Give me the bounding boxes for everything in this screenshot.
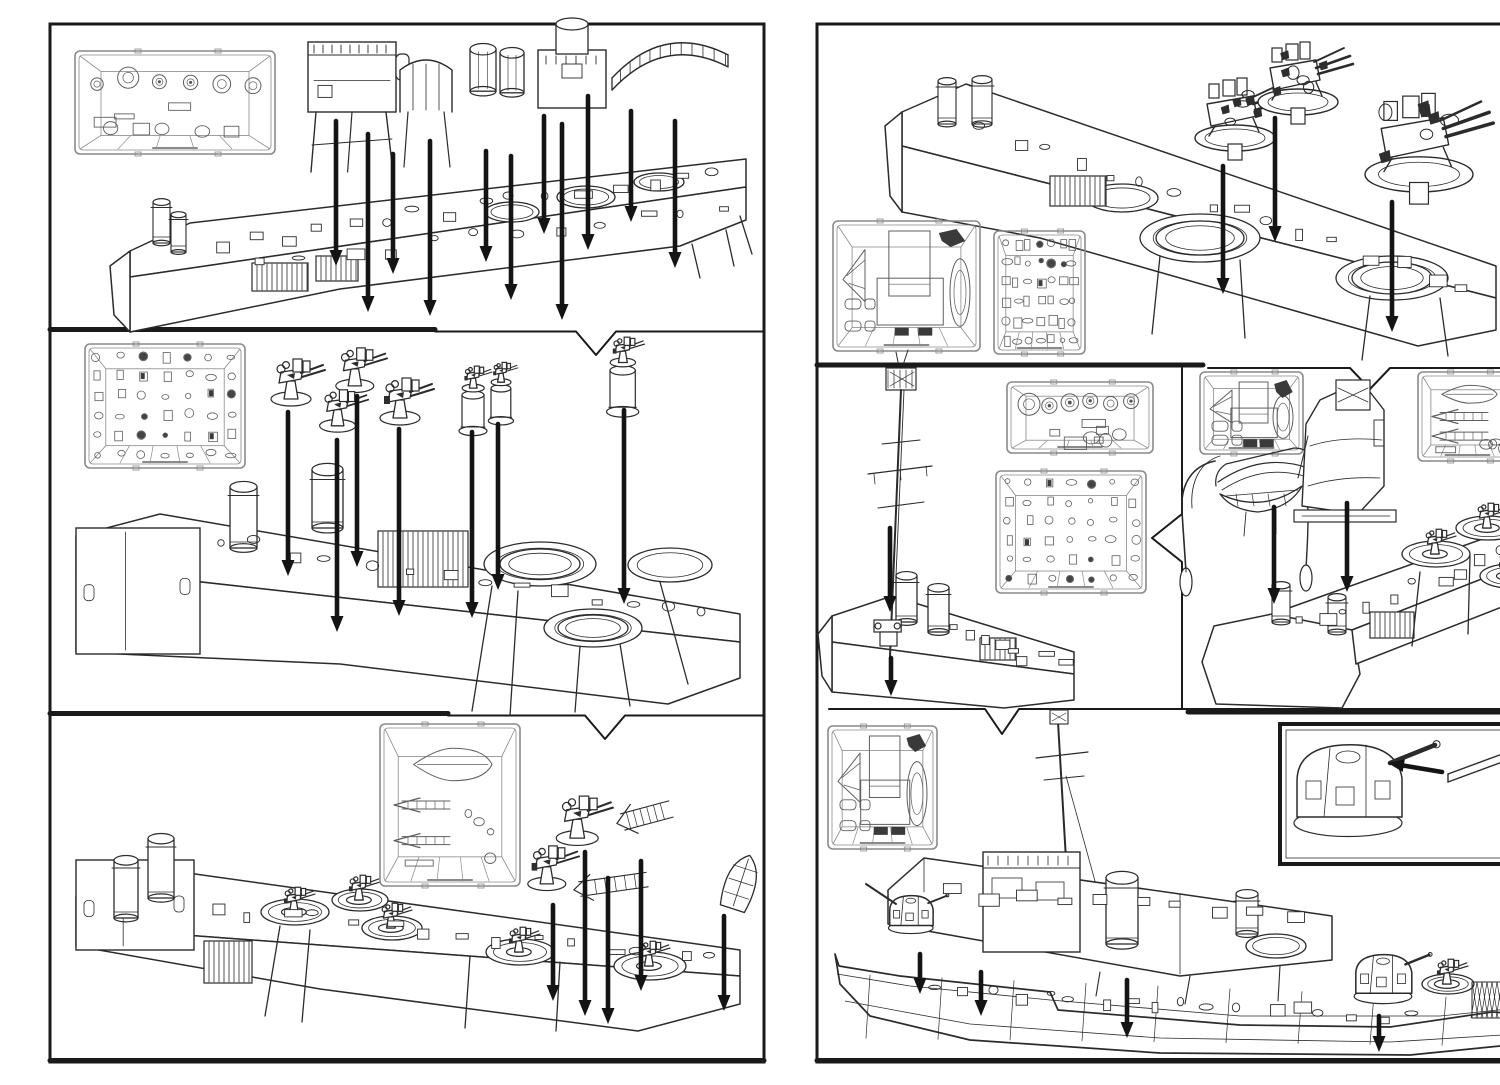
ships-boat-part bbox=[718, 851, 764, 914]
aa-gun-mount bbox=[336, 348, 387, 393]
aa-gun-mount bbox=[528, 846, 579, 891]
quad-aa-gun-assembly bbox=[1365, 93, 1493, 204]
funnel bbox=[228, 481, 259, 552]
gun-tub bbox=[1156, 221, 1244, 255]
panel-step-3 bbox=[76, 722, 764, 1031]
panel-step-5b bbox=[1180, 370, 1500, 708]
curved-platform bbox=[612, 43, 728, 90]
quad-aa-gun-assembly bbox=[1258, 42, 1353, 124]
cylinder-part bbox=[470, 43, 496, 95]
parts-sprue bbox=[996, 469, 1146, 595]
parts-sprue bbox=[1418, 370, 1500, 463]
ship-section bbox=[818, 572, 1074, 708]
parts-sprue bbox=[828, 724, 937, 851]
assembly-arrow bbox=[618, 410, 631, 604]
parts-sprue bbox=[380, 722, 520, 888]
gun-tub bbox=[628, 548, 712, 582]
funnel bbox=[112, 856, 140, 922]
rail-rack-part bbox=[613, 795, 675, 838]
funnel bbox=[1104, 871, 1140, 949]
assembly-arrow bbox=[1268, 507, 1281, 604]
funnel bbox=[936, 78, 958, 127]
pedestal-gun bbox=[459, 366, 492, 436]
funnel bbox=[169, 212, 188, 255]
funnel bbox=[151, 199, 172, 246]
panel-divider-notch bbox=[448, 716, 764, 740]
vent-grill bbox=[252, 263, 308, 291]
funnel bbox=[310, 463, 345, 533]
funnel bbox=[926, 584, 951, 636]
panel-step-2 bbox=[76, 337, 740, 716]
superstructure-assembly bbox=[866, 710, 1332, 1004]
gun-tub bbox=[558, 615, 628, 641]
gun-turret bbox=[1354, 952, 1432, 1003]
aa-gun-mount bbox=[462, 366, 492, 392]
parts-sprue bbox=[994, 229, 1085, 356]
funnel bbox=[894, 572, 919, 626]
parts-sprue bbox=[75, 49, 275, 156]
ship-section bbox=[1202, 503, 1500, 708]
funnel bbox=[970, 76, 994, 128]
vent-grill bbox=[1050, 176, 1106, 206]
turret-detail-inset bbox=[1280, 724, 1500, 864]
ship-section bbox=[76, 463, 740, 716]
panel-step-1 bbox=[75, 18, 752, 332]
funnel bbox=[146, 833, 176, 902]
sheet-artwork bbox=[40, 16, 1500, 1069]
pedestal-gun bbox=[607, 337, 645, 417]
deckhouse-with-funnel bbox=[538, 18, 606, 108]
parts-sprue bbox=[1200, 370, 1303, 456]
aa-gun-mount bbox=[380, 378, 434, 425]
boat-and-davits-assembly bbox=[1180, 448, 1312, 596]
panel-divider-notch bbox=[435, 332, 764, 356]
vent-grill bbox=[1370, 612, 1414, 638]
gun-tub bbox=[1246, 934, 1306, 958]
aa-gun-mount bbox=[610, 337, 644, 367]
parts-sprue bbox=[85, 342, 245, 470]
panel-step-4 bbox=[833, 42, 1496, 360]
aa-gun-mount bbox=[271, 359, 325, 406]
gun-tub bbox=[500, 549, 580, 579]
funnel-duct-assembly bbox=[1294, 380, 1396, 522]
panel-step-5a bbox=[818, 350, 1153, 708]
parts-sprue bbox=[1007, 380, 1153, 455]
pedestal-gun bbox=[488, 362, 518, 425]
splinter-shield bbox=[400, 60, 452, 167]
aa-gun-mount bbox=[320, 390, 369, 432]
deckhouse-block bbox=[76, 528, 200, 654]
panel-divider-notch bbox=[1152, 368, 1182, 708]
scanned-instruction-sheet bbox=[40, 16, 1500, 1069]
parts-sprue bbox=[833, 219, 980, 353]
aa-gun-mount bbox=[491, 362, 518, 385]
aa-gun-mount bbox=[556, 796, 613, 845]
cylinder-part bbox=[500, 48, 524, 98]
vent-grill bbox=[204, 941, 252, 983]
